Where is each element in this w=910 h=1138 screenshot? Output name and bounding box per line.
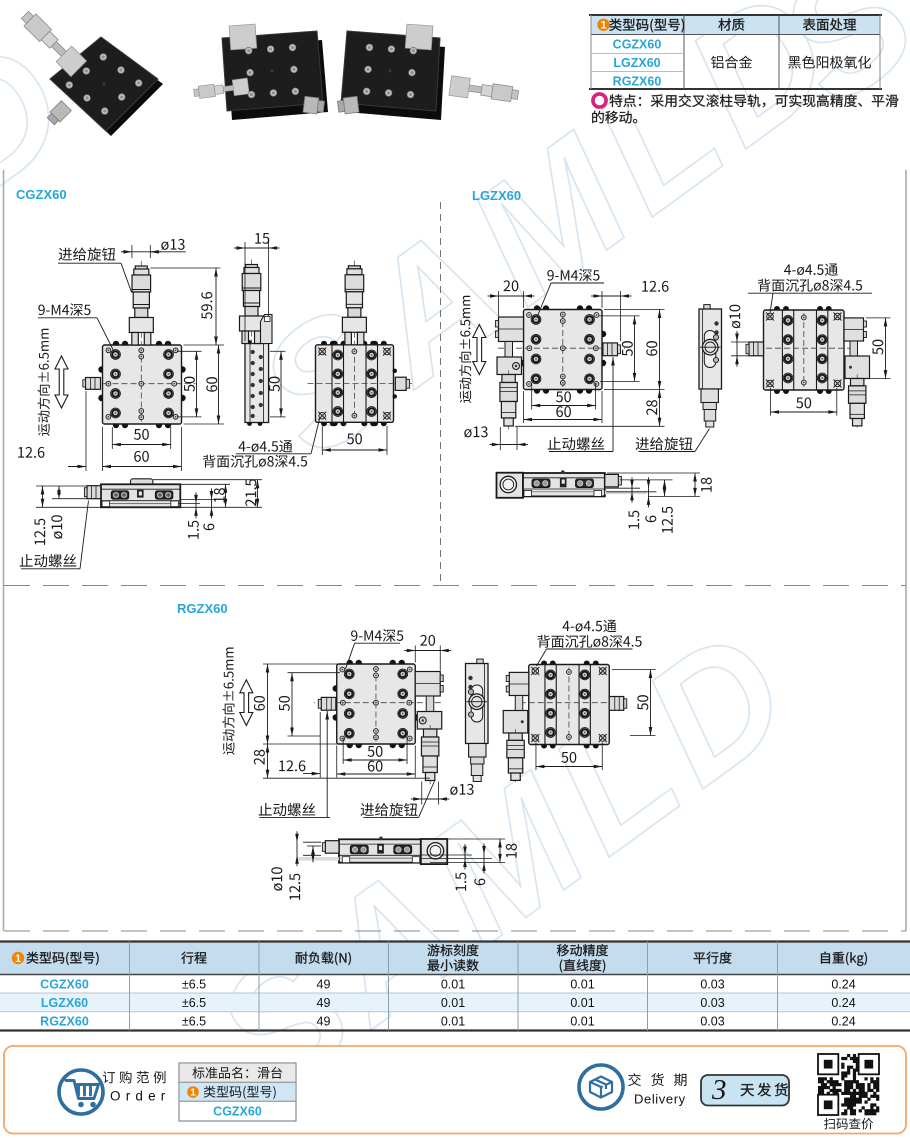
svg-text:CGZX60: CGZX60 <box>613 38 662 52</box>
svg-text:0.03: 0.03 <box>700 1015 724 1029</box>
svg-text:RGZX60: RGZX60 <box>613 75 662 89</box>
svg-text:LGZX60: LGZX60 <box>41 996 88 1010</box>
svg-text:49: 49 <box>317 996 331 1010</box>
svg-text:3: 3 <box>711 1074 727 1106</box>
svg-text:LGZX60: LGZX60 <box>472 188 521 203</box>
svg-text:CGZX60: CGZX60 <box>16 187 67 202</box>
svg-text:CGZX60: CGZX60 <box>213 1105 262 1119</box>
svg-text:CGZX60: CGZX60 <box>40 978 89 992</box>
svg-text:0.03: 0.03 <box>700 978 724 992</box>
svg-text:49: 49 <box>317 978 331 992</box>
svg-text:49: 49 <box>317 1015 331 1029</box>
svg-text:±6.5: ±6.5 <box>182 996 206 1010</box>
svg-text:0.01: 0.01 <box>570 978 594 992</box>
svg-text:1: 1 <box>190 1087 196 1099</box>
svg-text:0.24: 0.24 <box>831 978 855 992</box>
svg-text:0.01: 0.01 <box>441 996 465 1010</box>
svg-text:0.01: 0.01 <box>570 1015 594 1029</box>
svg-text:±6.5: ±6.5 <box>182 1015 206 1029</box>
svg-text:Order: Order <box>110 1089 171 1104</box>
svg-text:LGZX60: LGZX60 <box>613 56 660 70</box>
svg-text:1: 1 <box>600 20 606 32</box>
svg-text:0.01: 0.01 <box>441 1015 465 1029</box>
svg-text:RGZX60: RGZX60 <box>177 601 228 616</box>
svg-text:0.01: 0.01 <box>441 978 465 992</box>
svg-text:0.24: 0.24 <box>831 996 855 1010</box>
svg-text:1: 1 <box>15 953 21 965</box>
svg-text:±6.5: ±6.5 <box>182 978 206 992</box>
svg-text:0.24: 0.24 <box>831 1015 855 1029</box>
svg-text:RGZX60: RGZX60 <box>40 1015 89 1029</box>
svg-text:0.03: 0.03 <box>700 996 724 1010</box>
svg-text:Delivery: Delivery <box>634 1092 686 1107</box>
svg-text:0.01: 0.01 <box>570 996 594 1010</box>
